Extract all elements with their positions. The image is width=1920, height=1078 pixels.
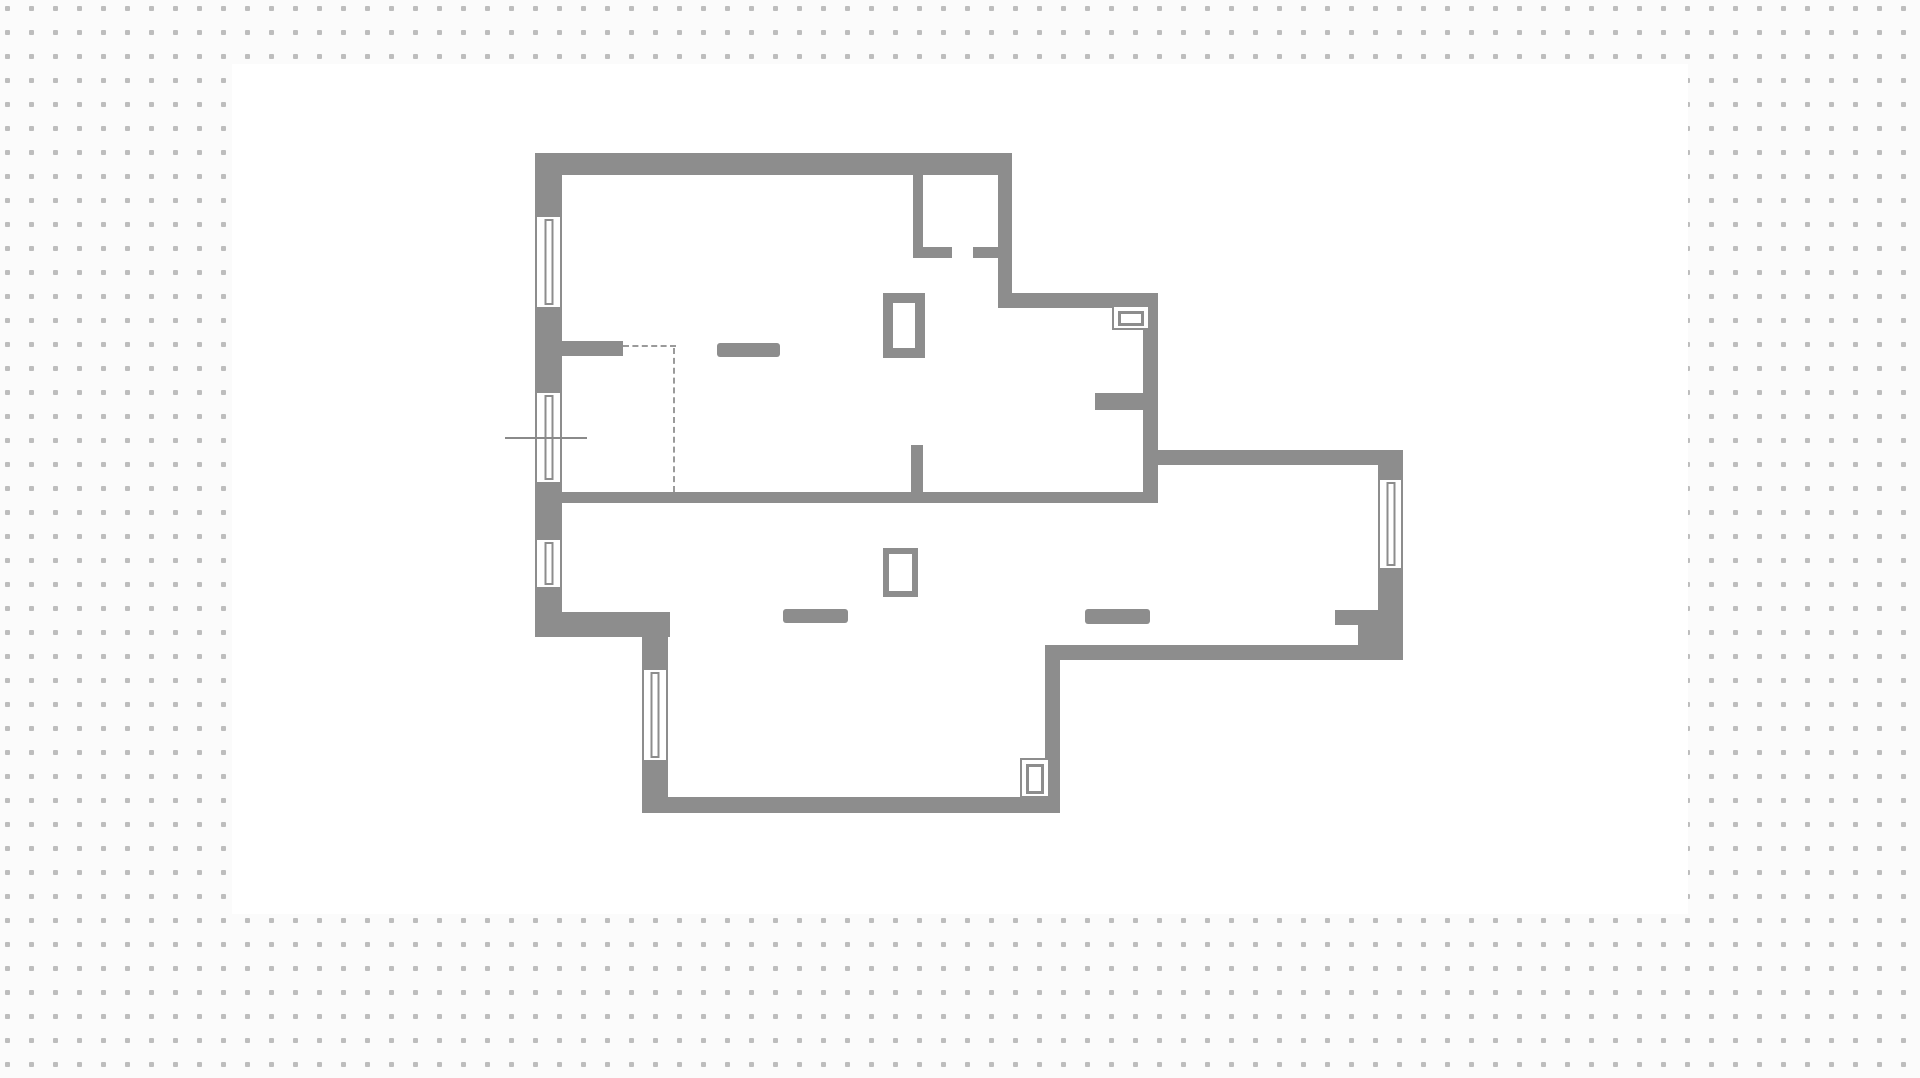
- lower-left-pier-top[interactable]: [642, 637, 668, 670]
- window-1-glass-pane: [544, 219, 553, 305]
- section-line[interactable]: [505, 437, 587, 439]
- left-wall-pier-top[interactable]: [535, 153, 562, 217]
- wing-bottom-wall[interactable]: [1045, 645, 1403, 660]
- hallway-stub-wall[interactable]: [1095, 393, 1143, 410]
- alcove-filler-wall[interactable]: [1358, 625, 1378, 645]
- bottom-wall[interactable]: [642, 797, 1060, 813]
- door-symbol-lower-leaf: [1026, 764, 1044, 794]
- alcove-stub-wall[interactable]: [1335, 610, 1378, 625]
- window-3[interactable]: [535, 540, 562, 587]
- middle-dividing-wall[interactable]: [562, 492, 1158, 503]
- window-5[interactable]: [1378, 480, 1403, 568]
- small-room-door-stub-right[interactable]: [973, 247, 998, 258]
- left-wall-pier-3[interactable]: [535, 482, 562, 540]
- small-room-door-stub-left[interactable]: [923, 247, 952, 258]
- floor-plan: [0, 0, 1920, 1078]
- window-4[interactable]: [642, 670, 668, 760]
- canvas[interactable]: [0, 0, 1920, 1078]
- small-room-left-wall[interactable]: [913, 175, 923, 258]
- upper-room-wall-bar[interactable]: [717, 343, 780, 357]
- lower-left-pier-bottom[interactable]: [642, 760, 668, 798]
- window-4-glass-pane: [651, 672, 660, 758]
- planned-wall-dashed-horizontal[interactable]: [623, 345, 676, 347]
- window-3-glass-pane: [544, 542, 553, 585]
- top-wall[interactable]: [535, 153, 1012, 175]
- shaft-upper-room[interactable]: [883, 293, 925, 358]
- planned-wall-dashed-vertical[interactable]: [673, 348, 675, 492]
- closet-stub-wall[interactable]: [562, 341, 623, 356]
- upper-right-outer-wall[interactable]: [998, 175, 1012, 293]
- window-5-glass-pane: [1386, 482, 1395, 566]
- right-wall-lower-block[interactable]: [1378, 568, 1403, 660]
- door-symbol-upper-leaf: [1118, 311, 1144, 326]
- shaft-lower-room[interactable]: [883, 548, 918, 597]
- left-step-wall[interactable]: [535, 612, 670, 637]
- door-symbol-lower[interactable]: [1020, 758, 1050, 798]
- door-symbol-upper[interactable]: [1112, 305, 1150, 330]
- wing-top-wall[interactable]: [1143, 450, 1403, 465]
- lower-room-wall-bar[interactable]: [783, 609, 848, 623]
- left-wall-pier-2[interactable]: [535, 307, 562, 393]
- right-wall-upper-block[interactable]: [1378, 450, 1403, 480]
- middle-wall-stub-up[interactable]: [911, 445, 923, 492]
- corridor-wall-bar[interactable]: [1085, 609, 1150, 624]
- window-1[interactable]: [535, 217, 562, 307]
